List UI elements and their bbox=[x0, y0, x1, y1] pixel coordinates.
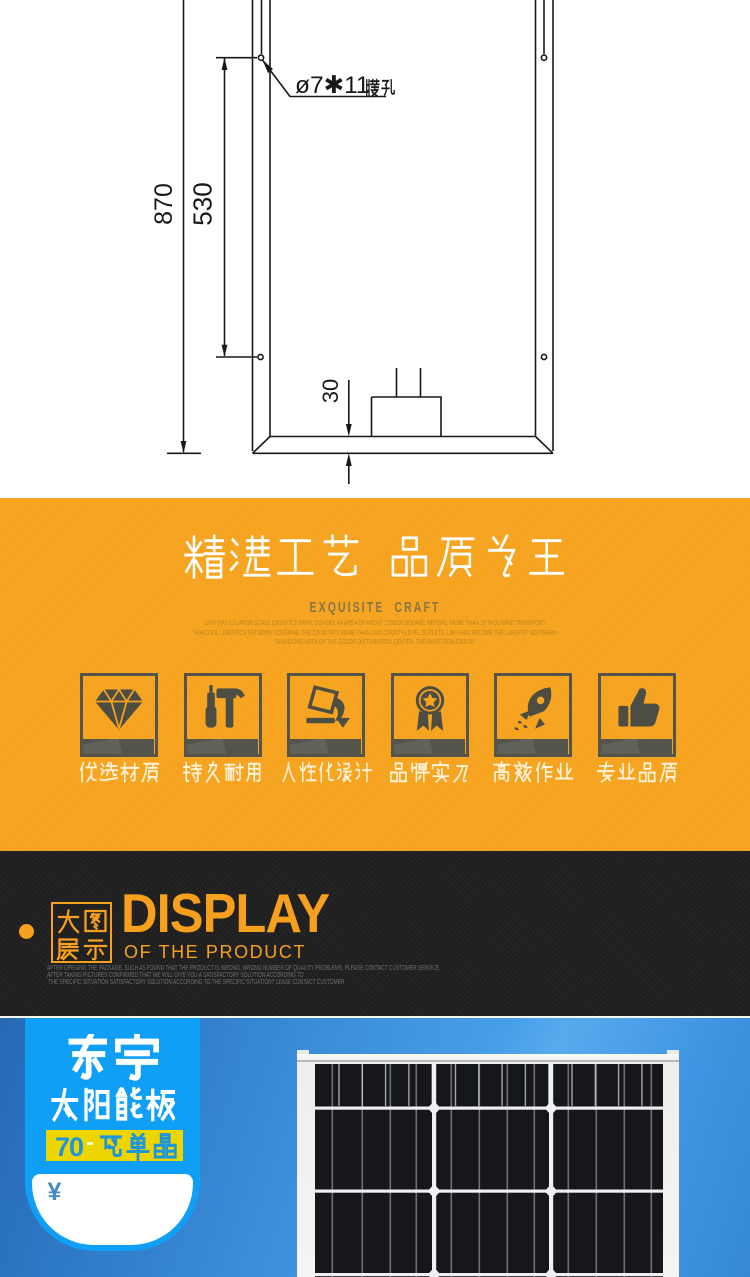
svg-text:530: 530 bbox=[188, 182, 218, 225]
svg-text:ø7✱11: ø7✱11 bbox=[295, 72, 370, 99]
svg-text:30: 30 bbox=[318, 379, 343, 403]
svg-text:870: 870 bbox=[150, 183, 178, 225]
